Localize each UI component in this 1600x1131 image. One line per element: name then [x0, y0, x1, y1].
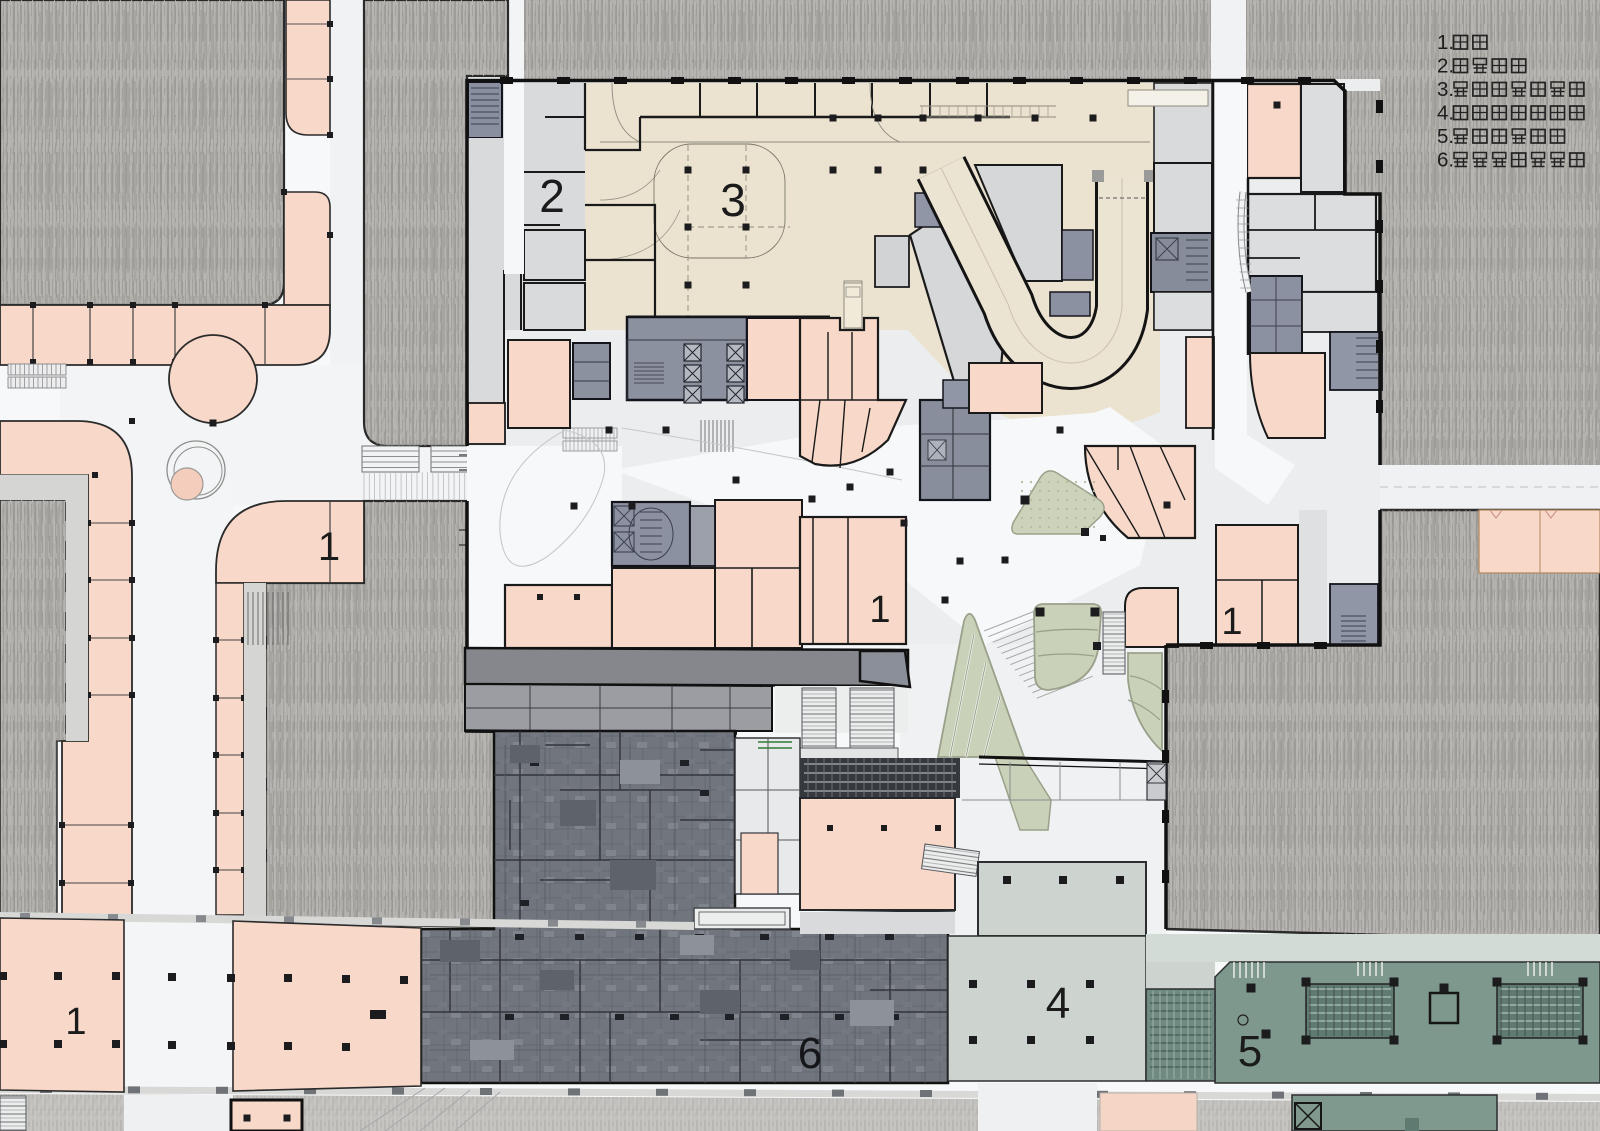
svg-text:2: 2: [539, 170, 565, 222]
svg-text:3.: 3.: [1437, 78, 1454, 101]
svg-text:5: 5: [1238, 1027, 1262, 1076]
svg-text:3: 3: [720, 174, 746, 226]
svg-text:1: 1: [318, 525, 340, 569]
svg-text:1: 1: [1221, 601, 1242, 643]
svg-text:1: 1: [869, 589, 890, 631]
svg-text:6.: 6.: [1437, 149, 1454, 172]
svg-text:2.: 2.: [1437, 55, 1454, 78]
svg-text:1: 1: [65, 1001, 86, 1043]
svg-text:6: 6: [798, 1029, 822, 1078]
svg-text:4.: 4.: [1437, 102, 1454, 125]
svg-text:1.: 1.: [1437, 31, 1454, 54]
svg-text:5.: 5.: [1437, 125, 1454, 148]
svg-text:4: 4: [1046, 979, 1070, 1028]
